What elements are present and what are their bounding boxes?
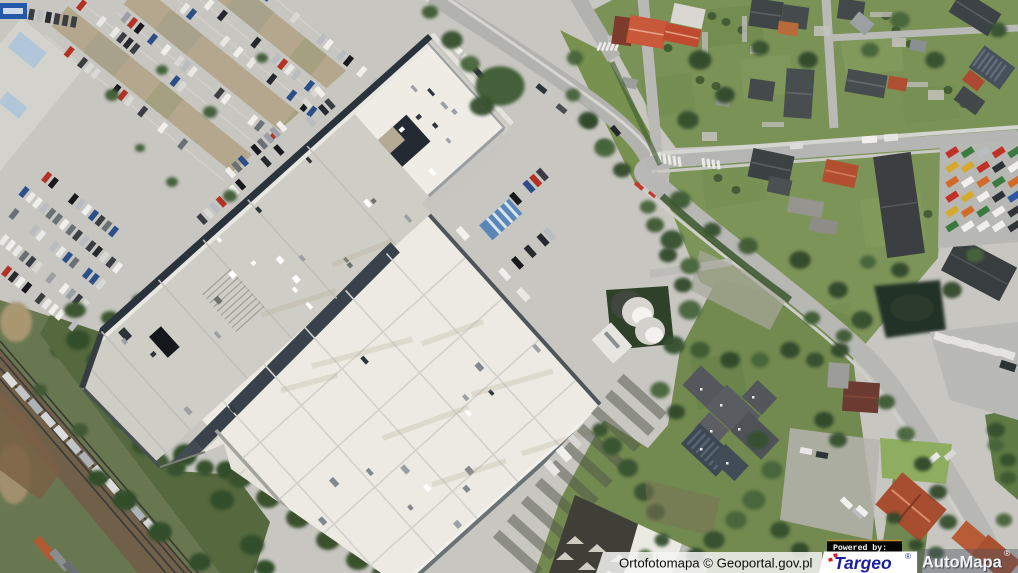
svg-text:Targeo: Targeo: [834, 553, 892, 573]
svg-text:®: ®: [905, 552, 911, 561]
svg-text:Ortofotomapa © Geoportal.gov.p: Ortofotomapa © Geoportal.gov.pl: [619, 556, 813, 571]
svg-text:®: ®: [1004, 548, 1011, 558]
svg-text:Powered by:: Powered by:: [833, 543, 887, 553]
svg-text:AutoMapa: AutoMapa: [922, 554, 1003, 572]
